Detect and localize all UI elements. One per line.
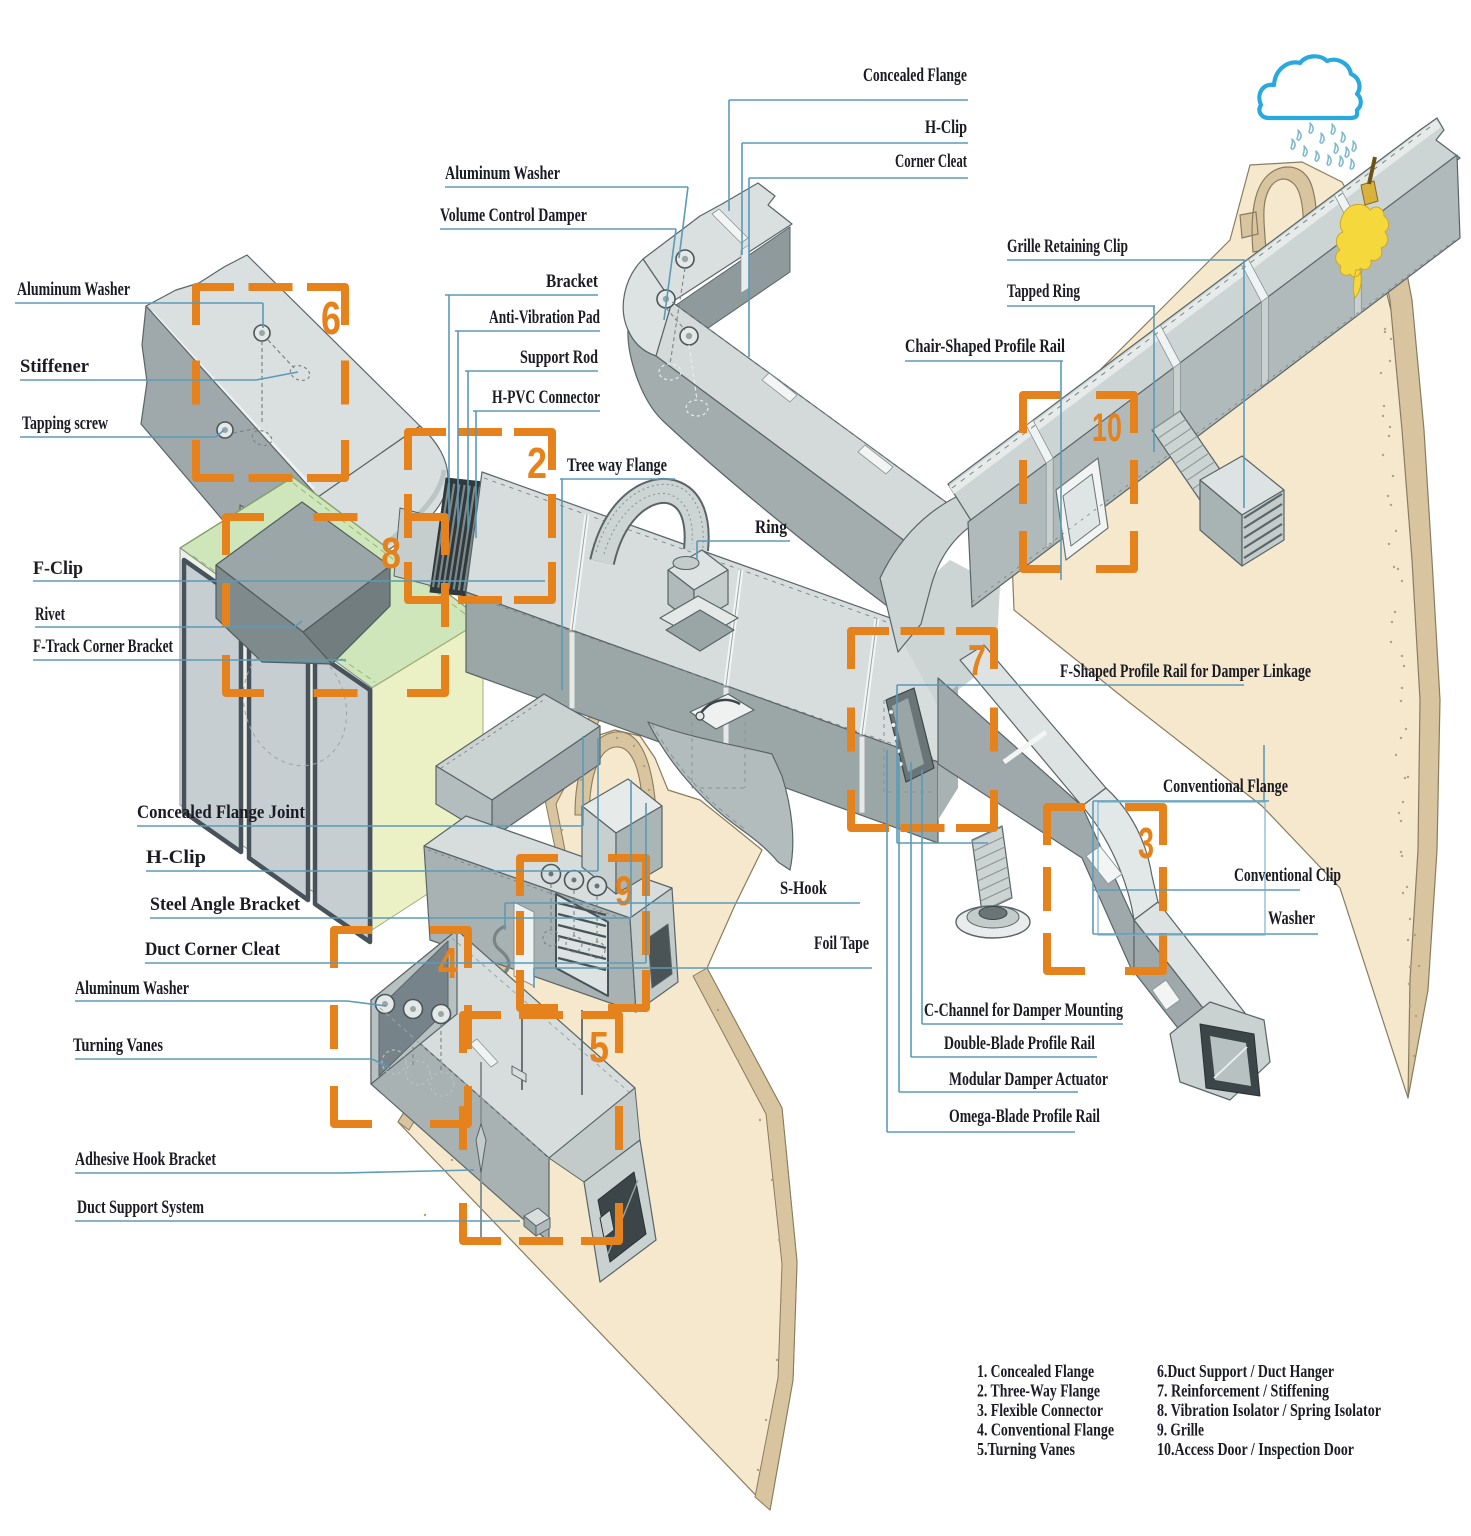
svg-text:Double-Blade Profile Rail: Double-Blade Profile Rail <box>944 1033 1095 1054</box>
svg-text:F-Clip: F-Clip <box>33 558 83 579</box>
svg-text:2. Three-Way Flange: 2. Three-Way Flange <box>977 1381 1100 1401</box>
svg-text:1. Concealed Flange: 1. Concealed Flange <box>977 1361 1094 1381</box>
svg-text:Duct Support System: Duct Support System <box>77 1197 204 1218</box>
svg-text:Tapping screw: Tapping screw <box>22 413 108 434</box>
svg-text:8: 8 <box>381 529 401 578</box>
svg-text:3. Flexible Connector: 3. Flexible Connector <box>977 1400 1103 1420</box>
svg-text:Foil Tape: Foil Tape <box>814 933 869 954</box>
svg-text:Duct Corner Cleat: Duct Corner Cleat <box>145 939 281 960</box>
svg-text:Tree way Flange: Tree way Flange <box>567 455 667 476</box>
svg-text:Aluminum Washer: Aluminum Washer <box>445 163 560 184</box>
svg-text:Aluminum Washer: Aluminum Washer <box>17 279 130 300</box>
svg-text:Corner Cleat: Corner Cleat <box>895 151 967 172</box>
svg-text:3: 3 <box>1138 819 1154 868</box>
svg-text:10.Access Door / Inspection Do: 10.Access Door / Inspection Door <box>1157 1439 1354 1459</box>
svg-text:Conventional Clip: Conventional Clip <box>1234 865 1341 886</box>
svg-text:Modular Damper Actuator: Modular Damper Actuator <box>949 1069 1108 1090</box>
svg-text:5.Turning Vanes: 5.Turning Vanes <box>977 1439 1075 1459</box>
svg-text:2: 2 <box>527 439 547 488</box>
svg-text:Turning Vanes: Turning Vanes <box>73 1035 163 1056</box>
svg-text:6: 6 <box>321 292 341 344</box>
svg-text:Omega-Blade Profile Rail: Omega-Blade Profile Rail <box>949 1106 1100 1127</box>
svg-text:C-Channel for Damper Mounting: C-Channel for Damper Mounting <box>924 1000 1123 1021</box>
svg-text:F-Track Corner Bracket: F-Track Corner Bracket <box>33 636 173 657</box>
svg-text:S-Hook: S-Hook <box>780 878 827 899</box>
svg-text:9. Grille: 9. Grille <box>1157 1420 1204 1440</box>
svg-text:Conventional Flange: Conventional Flange <box>1163 776 1288 797</box>
svg-text:Tapped Ring: Tapped Ring <box>1007 281 1080 302</box>
svg-text:Adhesive Hook Bracket: Adhesive Hook Bracket <box>75 1149 216 1170</box>
svg-text:7. Reinforcement / Stiffening: 7. Reinforcement / Stiffening <box>1157 1381 1329 1401</box>
svg-text:Anti-Vibration Pad: Anti-Vibration Pad <box>489 307 600 328</box>
svg-text:Stiffener: Stiffener <box>20 356 90 377</box>
svg-text:Grille Retaining Clip: Grille Retaining Clip <box>1007 236 1128 257</box>
svg-text:H-Clip: H-Clip <box>925 117 967 138</box>
svg-text:Concealed Flange Joint: Concealed Flange Joint <box>137 802 306 823</box>
svg-text:7: 7 <box>968 636 986 685</box>
svg-text:Ring: Ring <box>755 517 787 538</box>
svg-text:8. Vibration Isolator / Spring: 8. Vibration Isolator / Spring Isolator <box>1157 1400 1381 1420</box>
svg-text:5: 5 <box>589 1023 609 1072</box>
svg-text:Volume Control Damper: Volume Control Damper <box>440 205 587 226</box>
svg-text:Rivet: Rivet <box>35 604 65 625</box>
svg-text:6.Duct Support / Duct Hanger: 6.Duct Support / Duct Hanger <box>1157 1361 1334 1381</box>
svg-text:Concealed Flange: Concealed Flange <box>863 65 967 86</box>
svg-text:Aluminum Washer: Aluminum Washer <box>75 978 189 999</box>
svg-text:Bracket: Bracket <box>546 271 599 292</box>
svg-text:Chair-Shaped Profile Rail: Chair-Shaped Profile Rail <box>905 336 1065 357</box>
svg-text:Steel Angle Bracket: Steel Angle Bracket <box>150 894 301 915</box>
svg-text:H-PVC Connector: H-PVC Connector <box>492 387 600 408</box>
svg-text:H-Clip: H-Clip <box>146 847 206 868</box>
svg-text:F-Shaped Profile Rail for Damp: F-Shaped Profile Rail for Damper Linkage <box>1060 661 1311 682</box>
svg-text:4. Conventional Flange: 4. Conventional Flange <box>977 1420 1114 1440</box>
svg-text:Washer: Washer <box>1268 908 1315 929</box>
svg-text:10: 10 <box>1092 406 1122 450</box>
svg-text:Support Rod: Support Rod <box>520 347 598 368</box>
